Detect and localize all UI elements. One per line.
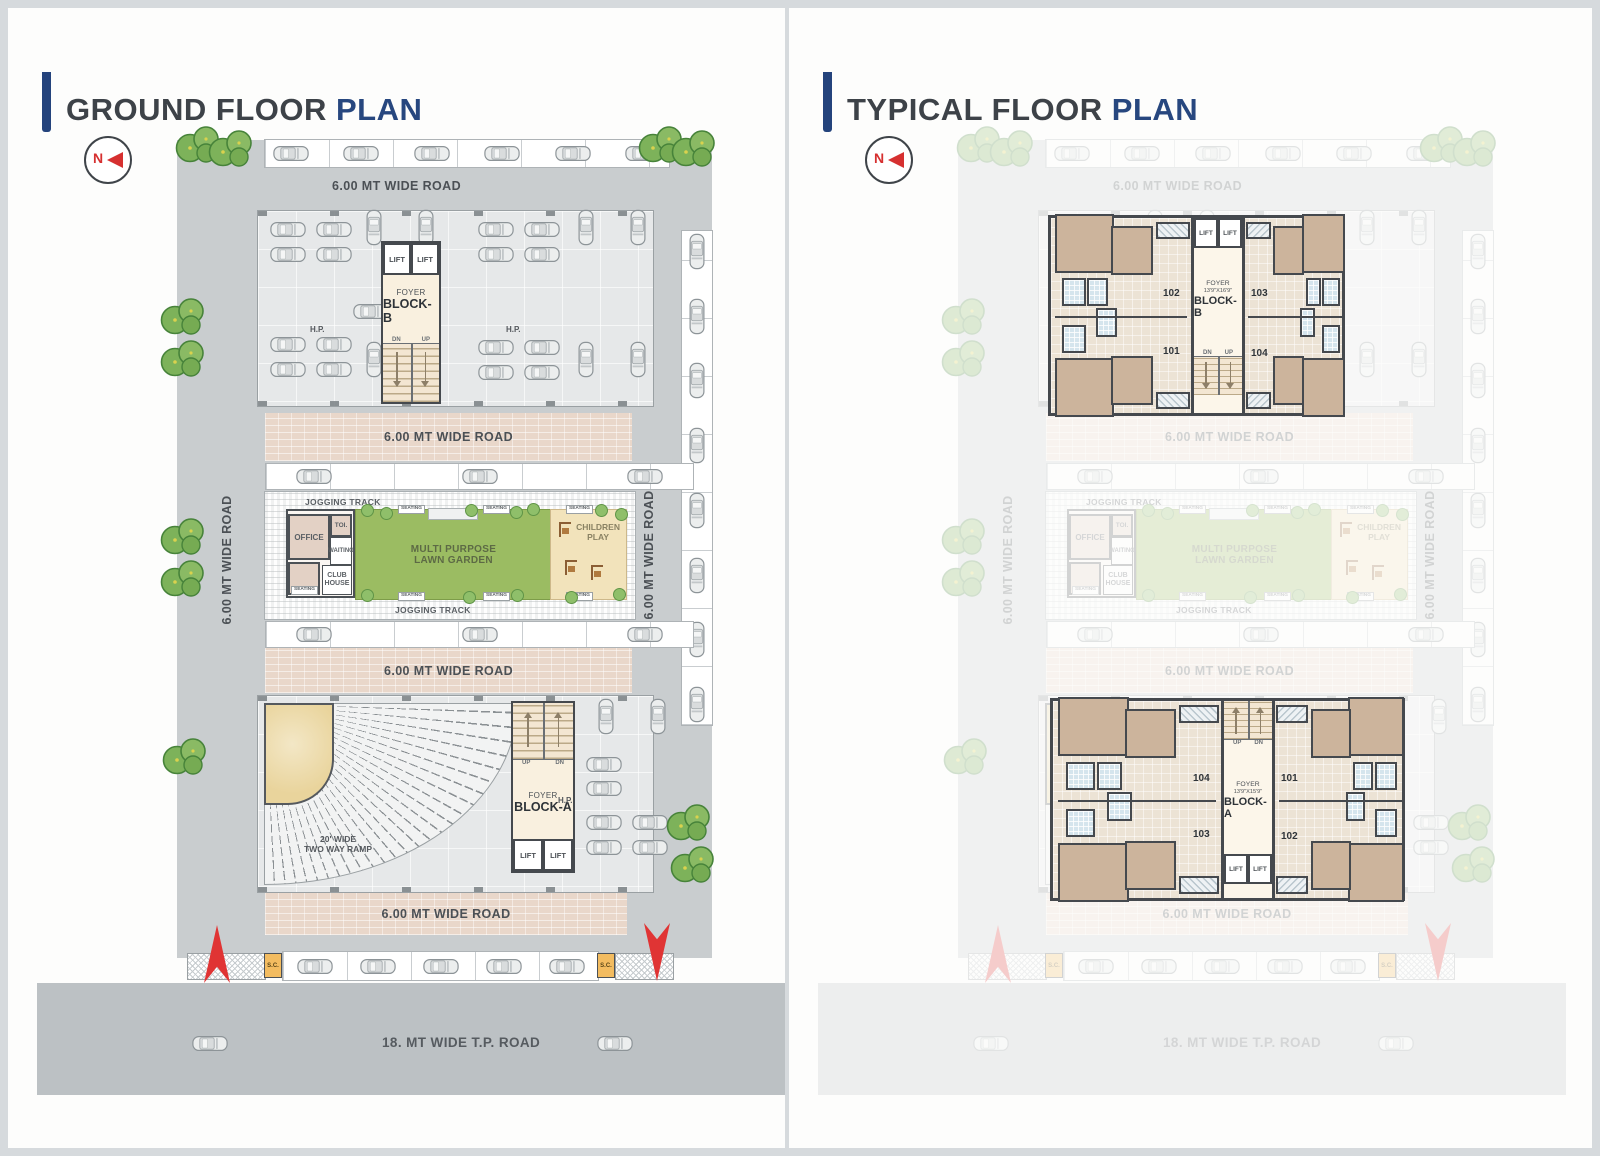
car-icon bbox=[366, 210, 383, 246]
bathroom bbox=[1107, 792, 1132, 822]
balcony bbox=[1246, 222, 1271, 240]
bathroom bbox=[1375, 809, 1398, 837]
unit-number: 103 bbox=[1193, 829, 1210, 840]
parked-cars bbox=[588, 708, 676, 725]
balcony bbox=[1179, 705, 1219, 723]
seating-label: SEATING bbox=[483, 592, 510, 601]
block-a-left-wing bbox=[1053, 701, 1221, 898]
road-mid-1: 6.00 MT WIDE ROAD bbox=[1046, 413, 1413, 461]
lift: LIFT bbox=[513, 839, 543, 871]
stair-divider bbox=[1218, 357, 1220, 395]
tree-icon bbox=[666, 803, 714, 845]
car-icon bbox=[586, 780, 622, 797]
lifts: LIFT LIFT bbox=[1224, 854, 1272, 884]
car-icon bbox=[598, 699, 615, 735]
room-toilet: TOI. bbox=[330, 514, 352, 537]
parked-cars bbox=[586, 814, 668, 856]
car-icon bbox=[1054, 145, 1090, 162]
amenity-band: JOGGING TRACK JOGGING TRACK OFFICE TOI. … bbox=[1045, 491, 1417, 620]
tp-road-label: 18. MT WIDE T.P. ROAD bbox=[382, 1035, 540, 1050]
foyer-label: FOYER bbox=[1236, 781, 1259, 788]
car-icon bbox=[689, 557, 706, 593]
tree-icon bbox=[160, 339, 208, 381]
car-icon bbox=[1124, 145, 1160, 162]
office-block: OFFICE TOI. WAITING CLUB HOUSE SEATING bbox=[1067, 509, 1136, 598]
car-icon bbox=[689, 686, 706, 722]
page-title-typical: TYPICAL FLOOR PLAN bbox=[847, 92, 1198, 128]
car-icon bbox=[316, 246, 352, 263]
bush-icon bbox=[1291, 506, 1304, 519]
parked-cars bbox=[586, 756, 622, 797]
room bbox=[1311, 709, 1351, 758]
bush-icon bbox=[463, 591, 476, 604]
car-icon bbox=[689, 492, 706, 528]
car-icon bbox=[316, 221, 352, 238]
car-icon bbox=[578, 342, 595, 378]
car-icon bbox=[366, 342, 383, 378]
site-plan: 6.00 MT WIDE ROAD 6.00 MT WIDE ROAD 6.00… bbox=[32, 125, 785, 1125]
stair-divider bbox=[543, 703, 545, 759]
children-play-area: CHILDREN PLAY bbox=[1331, 509, 1408, 600]
room bbox=[1348, 843, 1404, 902]
road-mid-2: 6.00 MT WIDE ROAD bbox=[265, 648, 632, 693]
room-office: OFFICE bbox=[288, 514, 330, 560]
room bbox=[1302, 358, 1345, 417]
security-cabin: S.C. bbox=[264, 953, 282, 978]
lift: LIFT bbox=[411, 243, 439, 275]
bathroom bbox=[1300, 308, 1315, 337]
road-label-top: 6.00 MT WIDE ROAD bbox=[332, 179, 461, 193]
tree-icon bbox=[160, 559, 208, 601]
foyer-block-a: FOYER 13'9"X15'9" BLOCK-A bbox=[1224, 746, 1272, 854]
car-icon bbox=[586, 839, 622, 856]
car-icon bbox=[689, 428, 706, 464]
tree-icon bbox=[941, 559, 989, 601]
room-club-house: CLUB HOUSE bbox=[1103, 565, 1133, 595]
security-cabin: S.C. bbox=[1045, 953, 1063, 978]
title-accent-bar bbox=[823, 72, 832, 132]
bush-icon bbox=[1346, 591, 1359, 604]
block-a-label: BLOCK-A bbox=[1224, 796, 1272, 820]
tree-icon bbox=[671, 129, 719, 171]
car-icon bbox=[578, 210, 595, 246]
car-icon bbox=[632, 839, 668, 856]
play-equipment-icon bbox=[1340, 522, 1352, 537]
car-icon bbox=[1431, 699, 1448, 735]
car-icon bbox=[630, 342, 647, 378]
stair-arrow-icon bbox=[1260, 708, 1262, 734]
road-mid-1: 6.00 MT WIDE ROAD bbox=[265, 413, 632, 461]
bush-icon bbox=[1142, 589, 1155, 602]
bush-icon bbox=[1396, 508, 1409, 521]
lift: LIFT bbox=[543, 839, 573, 871]
bathroom bbox=[1346, 792, 1366, 822]
car-icon bbox=[478, 246, 514, 263]
car-icon bbox=[555, 145, 591, 162]
room-club-house: CLUB HOUSE bbox=[322, 565, 352, 595]
bathroom bbox=[1306, 278, 1321, 305]
car-icon bbox=[486, 958, 522, 975]
car-icon bbox=[524, 364, 560, 381]
bathroom bbox=[1353, 762, 1373, 790]
car-icon bbox=[1378, 1035, 1414, 1052]
wall bbox=[1055, 316, 1187, 319]
road-car bbox=[973, 1035, 1009, 1057]
car-icon bbox=[627, 626, 663, 643]
bush-icon bbox=[1376, 504, 1389, 517]
road-label: 6.00 MT WIDE ROAD bbox=[384, 664, 513, 678]
car-icon bbox=[1359, 210, 1376, 246]
stairs bbox=[1224, 701, 1272, 740]
room bbox=[1058, 697, 1129, 756]
parking-strip-mid-1 bbox=[265, 463, 694, 490]
car-icon bbox=[1359, 342, 1376, 378]
typical-block-b: LIFT LIFT FOYER 13'9"X16'9" BLOCK-B DN U… bbox=[1048, 215, 1345, 416]
car-icon bbox=[524, 339, 560, 356]
car-icon bbox=[270, 361, 306, 378]
title-accent-bar bbox=[42, 72, 51, 132]
parked-cars bbox=[478, 221, 560, 263]
tp-road: 18. MT WIDE T.P. ROAD bbox=[37, 983, 785, 1095]
bush-icon bbox=[613, 588, 626, 601]
road-label-left-vertical: 6.00 MT WIDE ROAD bbox=[220, 440, 234, 680]
car-icon bbox=[414, 145, 450, 162]
play-equipment-icon bbox=[559, 522, 571, 537]
car-icon bbox=[973, 1035, 1009, 1052]
car-icon bbox=[1195, 145, 1231, 162]
play-equipment-icon bbox=[591, 565, 603, 580]
children-play-area: CHILDREN PLAY bbox=[550, 509, 627, 600]
jogging-track-label: JOGGING TRACK bbox=[395, 605, 471, 615]
parked-cars bbox=[478, 339, 560, 381]
children-play-label: CHILDREN PLAY bbox=[1357, 522, 1401, 542]
car-icon bbox=[689, 298, 706, 334]
car-icon bbox=[1470, 492, 1487, 528]
car-icon bbox=[1470, 298, 1487, 334]
car-icon bbox=[632, 814, 668, 831]
tree-icon bbox=[160, 297, 208, 339]
stairs bbox=[383, 343, 439, 402]
bush-icon bbox=[527, 503, 540, 516]
car-icon bbox=[462, 468, 498, 485]
garage-block-a: 20' WIDE TWO WAY RAMP UP DN FOYER BLOCK-… bbox=[257, 695, 654, 893]
hp-label: H.P. bbox=[506, 325, 521, 334]
road-label-left-vertical: 6.00 MT WIDE ROAD bbox=[1001, 440, 1015, 680]
car-icon bbox=[462, 626, 498, 643]
lawn-garden: MULTI PURPOSE LAWN GARDEN bbox=[355, 509, 552, 600]
car-icon bbox=[1077, 468, 1113, 485]
tree-icon bbox=[989, 129, 1037, 171]
stair-arrow-icon bbox=[558, 713, 560, 747]
page-title-ground: GROUND FLOOR PLAN bbox=[66, 92, 422, 128]
bush-icon bbox=[510, 506, 523, 519]
foyer-label: FOYER bbox=[1206, 280, 1229, 287]
room bbox=[1348, 697, 1404, 756]
security-cabin: S.C. bbox=[1378, 953, 1396, 978]
lawn-label: MULTI PURPOSE LAWN GARDEN bbox=[1192, 544, 1277, 566]
lift: LIFT bbox=[1218, 218, 1242, 248]
room bbox=[1055, 214, 1114, 273]
stair-arrow-icon bbox=[527, 713, 529, 747]
bush-icon bbox=[1246, 504, 1259, 517]
title-main: GROUND FLOOR bbox=[66, 92, 327, 127]
office-block: OFFICE TOI. WAITING CLUB HOUSE SEATING bbox=[286, 509, 355, 598]
bush-icon bbox=[1308, 503, 1321, 516]
bathroom bbox=[1097, 762, 1122, 790]
car-icon bbox=[1413, 814, 1449, 831]
wall bbox=[1248, 316, 1345, 319]
car-icon bbox=[273, 145, 309, 162]
lifts: LIFT LIFT bbox=[383, 243, 439, 275]
tree-icon bbox=[941, 339, 989, 381]
room bbox=[1058, 843, 1129, 902]
car-icon bbox=[1243, 468, 1279, 485]
tp-road: 18. MT WIDE T.P. ROAD bbox=[818, 983, 1566, 1095]
car-icon bbox=[1078, 958, 1114, 975]
block-b-right-wing bbox=[1245, 218, 1348, 413]
car-icon bbox=[524, 246, 560, 263]
parked-cars bbox=[356, 219, 444, 236]
stairs bbox=[513, 703, 573, 760]
car-icon bbox=[478, 221, 514, 238]
seating-label: SEATING bbox=[1264, 505, 1291, 514]
parked-cars bbox=[270, 221, 352, 263]
room bbox=[1055, 358, 1114, 417]
core-lobby bbox=[1194, 395, 1242, 413]
title-main: TYPICAL FLOOR bbox=[847, 92, 1103, 127]
parking-strip-mid-2 bbox=[1046, 621, 1475, 648]
foyer-label: FOYER bbox=[528, 791, 557, 800]
garage-block-b: H.P. H.P. LIFT LIFT FOYER BLOCK-B DN UP bbox=[257, 210, 654, 407]
road-label: 6.00 MT WIDE ROAD bbox=[384, 430, 513, 444]
car-icon bbox=[1077, 626, 1113, 643]
tree-icon bbox=[670, 845, 718, 887]
road-label: 6.00 MT WIDE ROAD bbox=[1162, 907, 1291, 921]
car-icon bbox=[1413, 839, 1449, 856]
bush-icon bbox=[1161, 507, 1174, 520]
foyer-label: FOYER bbox=[396, 288, 425, 297]
tree-icon bbox=[160, 517, 208, 559]
play-equipment-icon bbox=[1372, 565, 1384, 580]
car-icon bbox=[1336, 145, 1372, 162]
parked-cars bbox=[1349, 351, 1437, 368]
seating-label: SEATING bbox=[1179, 505, 1206, 514]
ground-floor-panel: GROUND FLOOR PLAN N 6.00 MT WIDE ROAD 6.… bbox=[8, 8, 785, 1148]
car-icon bbox=[484, 145, 520, 162]
hp-label: H.P. bbox=[558, 796, 573, 805]
block-b-label: BLOCK-B bbox=[1194, 295, 1242, 319]
stair-divider bbox=[1248, 701, 1250, 739]
entry-hatch-right bbox=[1396, 953, 1455, 980]
unit-number: 101 bbox=[1281, 773, 1298, 784]
bathroom bbox=[1087, 278, 1108, 305]
tree-icon bbox=[1451, 845, 1499, 887]
road-car bbox=[1378, 1035, 1414, 1057]
parking-strip-bottom bbox=[282, 951, 599, 981]
parked-cars bbox=[568, 219, 656, 236]
car-icon bbox=[597, 1035, 633, 1052]
seating-label: SEATING bbox=[291, 586, 318, 595]
unit-number: 104 bbox=[1193, 773, 1210, 784]
security-cabin: S.C. bbox=[597, 953, 615, 978]
bathroom bbox=[1322, 278, 1340, 305]
balcony bbox=[1276, 876, 1308, 894]
parked-cars bbox=[270, 336, 352, 378]
balcony bbox=[1156, 222, 1190, 240]
room bbox=[1111, 226, 1153, 275]
seating-label: SEATING bbox=[1347, 505, 1374, 514]
seating-label: SEATING bbox=[566, 505, 593, 514]
room-toilet: TOI. bbox=[1111, 514, 1133, 537]
car-icon bbox=[296, 468, 332, 485]
car-icon bbox=[650, 699, 667, 735]
car-icon bbox=[549, 958, 585, 975]
entry-hatch-right bbox=[615, 953, 674, 980]
stairs bbox=[1194, 356, 1242, 395]
car-icon bbox=[423, 958, 459, 975]
car-icon bbox=[1408, 626, 1444, 643]
room bbox=[1125, 841, 1175, 890]
car-icon bbox=[524, 221, 560, 238]
lifts: LIFT LIFT bbox=[513, 839, 573, 871]
car-icon bbox=[1330, 958, 1366, 975]
bathroom bbox=[1066, 762, 1095, 790]
road-label: 6.00 MT WIDE ROAD bbox=[381, 907, 510, 921]
parking-strip-mid-2 bbox=[265, 621, 694, 648]
car-icon bbox=[1267, 958, 1303, 975]
car-icon bbox=[192, 1035, 228, 1052]
unit-number: 103 bbox=[1251, 288, 1268, 299]
stair-arrow-icon bbox=[1235, 708, 1237, 734]
room bbox=[1273, 226, 1304, 275]
car-icon bbox=[343, 145, 379, 162]
bathroom bbox=[1062, 278, 1086, 305]
road-label: 6.00 MT WIDE ROAD bbox=[1165, 664, 1294, 678]
play-equipment-icon bbox=[1346, 560, 1358, 575]
pillar-row bbox=[258, 887, 653, 892]
car-icon bbox=[316, 361, 352, 378]
typical-block-a: UP DN FOYER 13'9"X15'9" BLOCK-A LIFT LIF… bbox=[1050, 698, 1405, 901]
bush-icon bbox=[361, 504, 374, 517]
parking-strip-top bbox=[1045, 139, 1451, 168]
lifts: LIFT LIFT bbox=[1194, 218, 1242, 248]
car-icon bbox=[1411, 210, 1428, 246]
car-icon bbox=[478, 364, 514, 381]
tp-road-label: 18. MT WIDE T.P. ROAD bbox=[1163, 1035, 1321, 1050]
car-icon bbox=[1470, 428, 1487, 464]
room bbox=[1273, 356, 1304, 405]
tree-icon bbox=[1447, 803, 1495, 845]
car-icon bbox=[270, 336, 306, 353]
amenity-band: JOGGING TRACK JOGGING TRACK OFFICE TOI. … bbox=[264, 491, 636, 620]
balcony bbox=[1156, 392, 1190, 410]
bush-icon bbox=[465, 504, 478, 517]
title-accent: PLAN bbox=[1112, 92, 1198, 127]
tree-icon bbox=[1452, 129, 1500, 171]
seating-label: SEATING bbox=[483, 505, 510, 514]
bush-icon bbox=[1292, 589, 1305, 602]
foyer-size: 13'9"X16'9" bbox=[1204, 288, 1233, 294]
car-icon bbox=[478, 339, 514, 356]
parked-cars bbox=[568, 351, 656, 368]
car-icon bbox=[297, 958, 333, 975]
tree-icon bbox=[943, 737, 991, 779]
bush-icon bbox=[595, 504, 608, 517]
room bbox=[1302, 214, 1345, 273]
bush-icon bbox=[1142, 504, 1155, 517]
car-icon bbox=[586, 814, 622, 831]
bathroom bbox=[1096, 308, 1117, 337]
lift: LIFT bbox=[383, 243, 411, 275]
title-accent: PLAN bbox=[336, 92, 422, 127]
block-a-core: UP DN FOYER 13'9"X15'9" BLOCK-A LIFT LIF… bbox=[1221, 701, 1275, 898]
bush-icon bbox=[361, 589, 374, 602]
balcony bbox=[1179, 876, 1219, 894]
car-icon bbox=[316, 336, 352, 353]
room bbox=[1111, 356, 1153, 405]
road-car bbox=[192, 1035, 228, 1057]
car-icon bbox=[1470, 686, 1487, 722]
tree-icon bbox=[941, 297, 989, 339]
wall bbox=[1279, 800, 1404, 803]
car-icon bbox=[270, 246, 306, 263]
seating-label: SEATING bbox=[398, 592, 425, 601]
stair-divider bbox=[411, 344, 413, 402]
seating-label: SEATING bbox=[398, 505, 425, 514]
road-label: 6.00 MT WIDE ROAD bbox=[1165, 430, 1294, 444]
car-icon bbox=[1265, 145, 1301, 162]
seating-label: SEATING bbox=[1264, 592, 1291, 601]
unit-number: 102 bbox=[1163, 288, 1180, 299]
parked-cars bbox=[1349, 219, 1437, 236]
children-play-label: CHILDREN PLAY bbox=[576, 522, 620, 542]
bush-icon bbox=[1394, 588, 1407, 601]
room-waiting: WAITING bbox=[330, 537, 352, 565]
road-mid-2: 6.00 MT WIDE ROAD bbox=[1046, 648, 1413, 693]
foyer-block-b: FOYER 13'9"X16'9" BLOCK-B bbox=[1194, 248, 1242, 350]
block-b-core: LIFT LIFT FOYER BLOCK-B DN UP bbox=[381, 241, 441, 404]
seating-label: SEATING bbox=[1179, 592, 1206, 601]
road-label-top: 6.00 MT WIDE ROAD bbox=[1113, 179, 1242, 193]
bush-icon bbox=[1244, 591, 1257, 604]
ramp-label: 20' WIDE TWO WAY RAMP bbox=[283, 834, 393, 854]
bush-icon bbox=[565, 591, 578, 604]
bathroom bbox=[1322, 325, 1340, 352]
block-b-left-wing bbox=[1051, 218, 1191, 413]
balcony bbox=[1276, 705, 1308, 723]
seating-label: SEATING bbox=[1072, 586, 1099, 595]
car-icon bbox=[1470, 234, 1487, 270]
play-equipment-icon bbox=[565, 560, 577, 575]
ground-floor-site: 6.00 MT WIDE ROAD 6.00 MT WIDE ROAD 6.00… bbox=[32, 125, 785, 1125]
car-icon bbox=[689, 234, 706, 270]
room bbox=[1311, 841, 1351, 890]
bush-icon bbox=[615, 508, 628, 521]
car-icon bbox=[1243, 626, 1279, 643]
core-lobby bbox=[1224, 884, 1272, 898]
room-waiting: WAITING bbox=[1111, 537, 1133, 565]
pillar-row bbox=[258, 401, 653, 406]
unit-number: 102 bbox=[1281, 831, 1298, 842]
tree-icon bbox=[208, 129, 256, 171]
foyer-block-b: FOYER BLOCK-B bbox=[383, 275, 439, 337]
tree-icon bbox=[941, 517, 989, 559]
wall bbox=[1058, 800, 1216, 803]
parking-strip-bottom bbox=[1063, 951, 1380, 981]
car-icon bbox=[1470, 363, 1487, 399]
block-b-core: LIFT LIFT FOYER 13'9"X16'9" BLOCK-B DN U… bbox=[1191, 218, 1245, 413]
room bbox=[1125, 709, 1175, 758]
